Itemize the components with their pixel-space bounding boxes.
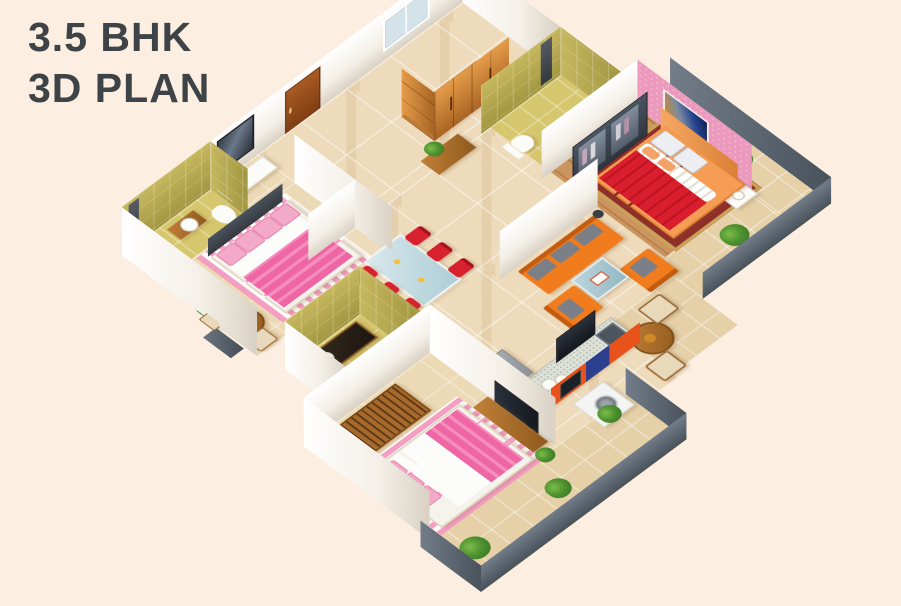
coffee-table-books-icon (589, 271, 610, 286)
hanging-garment-icon (624, 116, 629, 134)
window-mullion-icon (406, 5, 407, 33)
sofa-cushion (526, 258, 557, 281)
dining-candle-icon (392, 258, 401, 265)
door-handle-icon (289, 107, 291, 114)
floor-plan-canvas: 3.5 BHK 3D PLAN (0, 0, 901, 601)
sofa-cushion (573, 223, 604, 246)
sofa-cushion (550, 241, 581, 264)
wardrobe-handle-icon (450, 96, 452, 111)
shower-panel-icon (541, 36, 552, 86)
hanging-garment-icon (616, 122, 621, 140)
plan-title: 3.5 BHK 3D PLAN (28, 12, 210, 115)
armchair-cushion (556, 298, 585, 320)
dining-candle-icon (417, 276, 426, 283)
hanging-garment-icon (582, 147, 587, 165)
fruit-bowl-icon (642, 332, 659, 344)
plan-title-line1: 3.5 BHK (28, 12, 210, 63)
plan-title-line2: 3D PLAN (28, 63, 210, 114)
seat-cushion (629, 256, 658, 278)
hanging-garment-icon (591, 141, 596, 159)
